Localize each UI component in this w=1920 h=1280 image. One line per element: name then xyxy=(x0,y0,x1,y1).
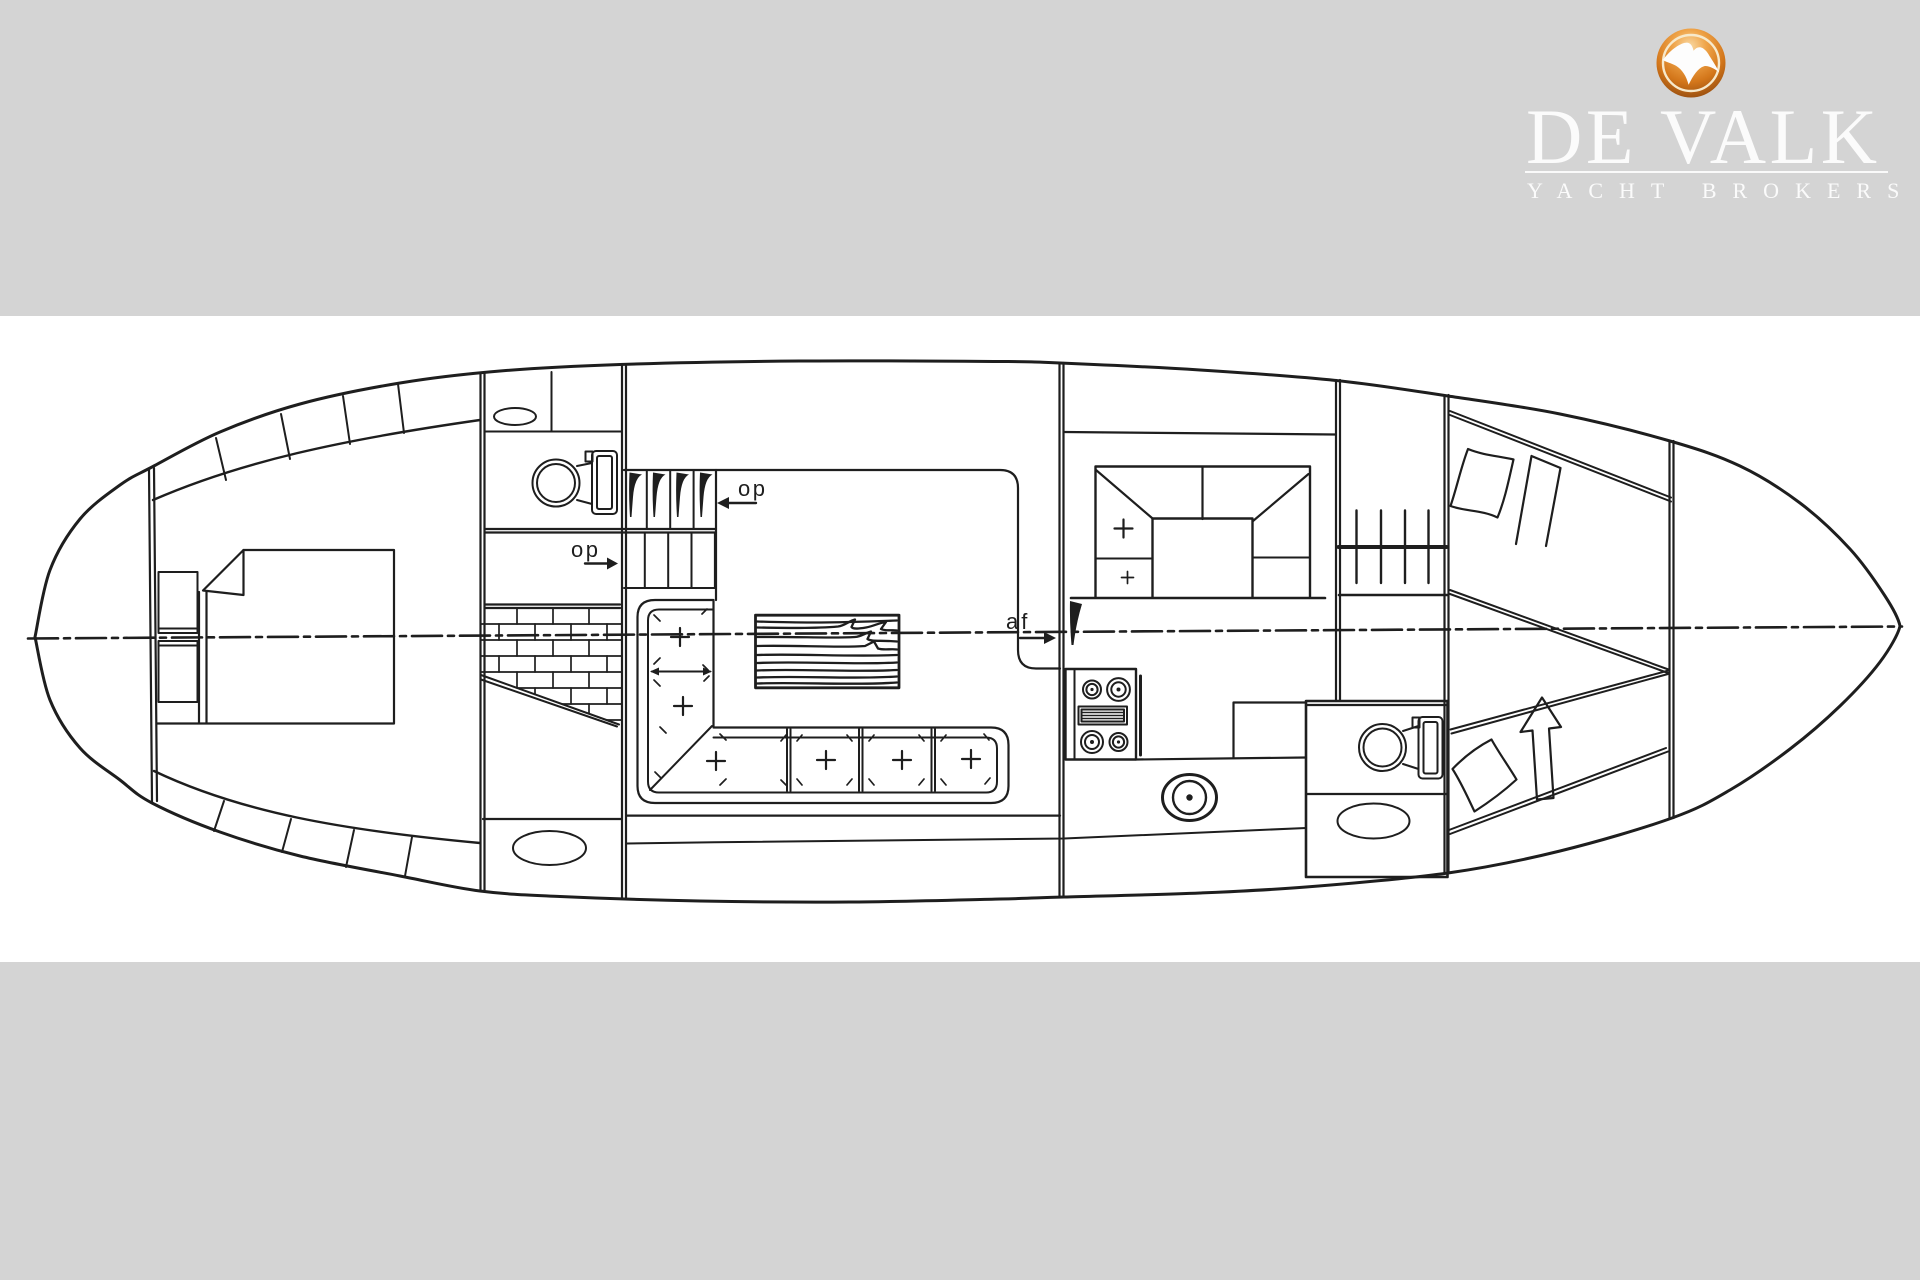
svg-text:op: op xyxy=(738,476,767,501)
svg-text:op: op xyxy=(571,537,600,562)
svg-text:af: af xyxy=(1006,609,1030,634)
